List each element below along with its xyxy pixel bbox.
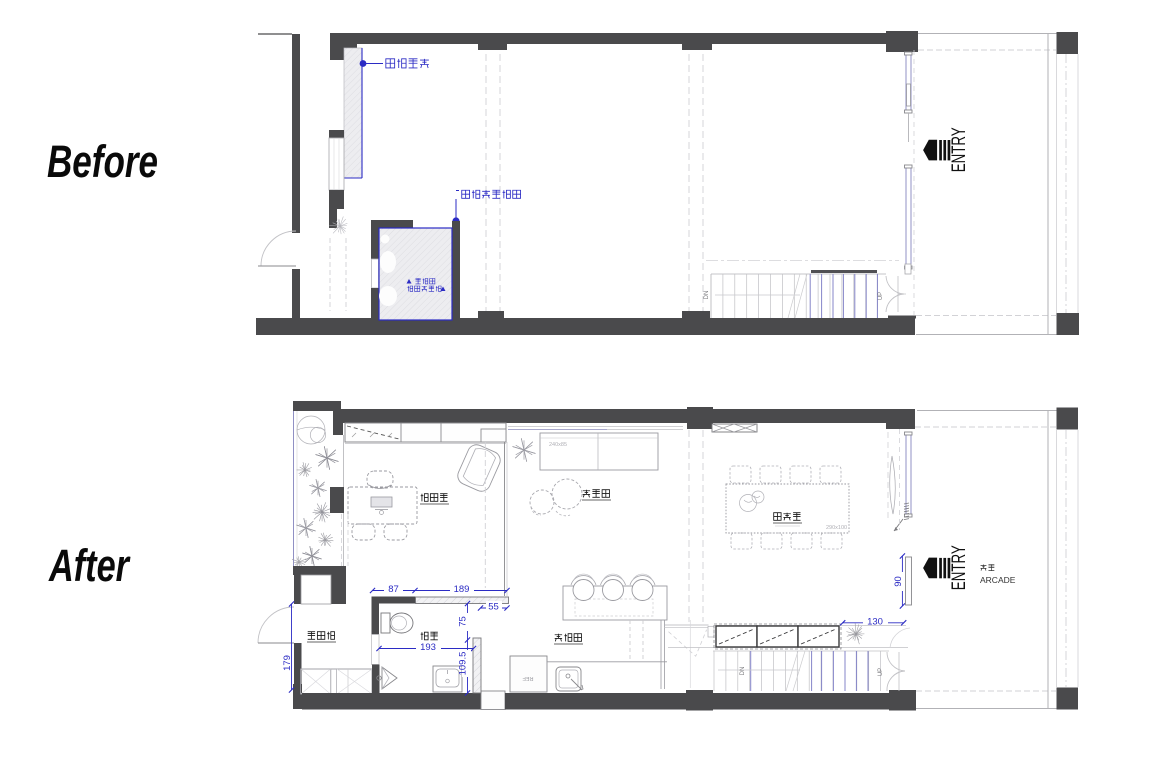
svg-text:130: 130	[867, 617, 883, 628]
svg-text:ARCADE: ARCADE	[980, 575, 1016, 585]
svg-text:87: 87	[388, 584, 399, 595]
svg-text:75: 75	[458, 616, 469, 627]
svg-text:189: 189	[454, 584, 470, 595]
svg-text:After: After	[48, 540, 131, 591]
svg-text:109.5: 109.5	[458, 652, 469, 676]
svg-text:DN: DN	[740, 667, 746, 676]
svg-text:193: 193	[420, 642, 436, 653]
svg-text:DN: DN	[704, 291, 710, 300]
svg-text:ENTRY: ENTRY	[948, 545, 970, 590]
svg-text:179: 179	[282, 655, 293, 671]
svg-text:90: 90	[893, 576, 904, 587]
svg-text:240x85: 240x85	[549, 442, 567, 448]
svg-text:REF: REF	[522, 675, 534, 681]
svg-text:ENTRY: ENTRY	[948, 127, 970, 172]
svg-text:UP: UP	[878, 292, 884, 300]
svg-text:Before: Before	[47, 136, 158, 187]
svg-text:55: 55	[488, 602, 499, 613]
svg-text:290x100: 290x100	[826, 525, 847, 531]
svg-text:UP: UP	[878, 668, 884, 676]
